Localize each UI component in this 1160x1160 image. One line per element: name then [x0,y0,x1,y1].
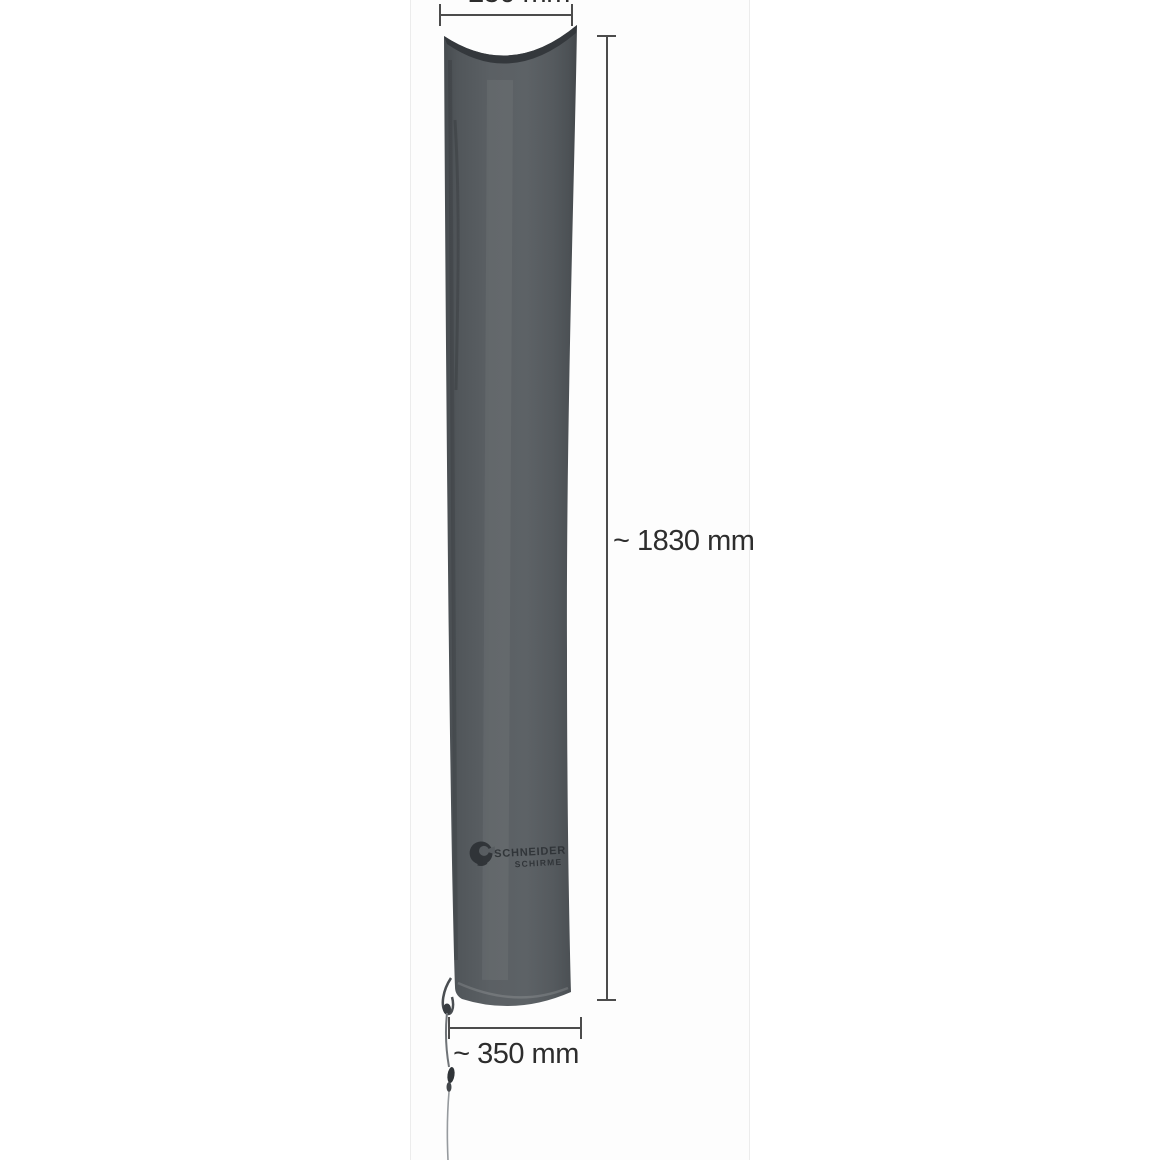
dimension-height-tick-bottom [597,999,616,1001]
dimension-height-label: ~ 1830 mm [613,524,754,558]
dimension-top-width-tick-right [571,4,573,26]
dimension-top-width-tick-left [439,4,441,26]
umbrella-cover-illustration: SCHNEIDER SCHIRME [0,0,1160,1160]
dimension-top-width-line [440,14,573,16]
product-image-page: SCHNEIDER SCHIRME ~ 250 mm ~ 1830 mm ~ 3… [0,0,1160,1160]
dimension-bottom-width-tick-left [448,1017,450,1039]
dimension-bottom-width-tick-right [580,1017,582,1039]
dimension-bottom-width-label: ~ 350 mm [416,1037,616,1071]
dimension-top-width-label: ~ 250 mm [407,0,607,10]
dimension-height-line [606,36,608,1000]
dimension-bottom-width-line [449,1027,582,1029]
